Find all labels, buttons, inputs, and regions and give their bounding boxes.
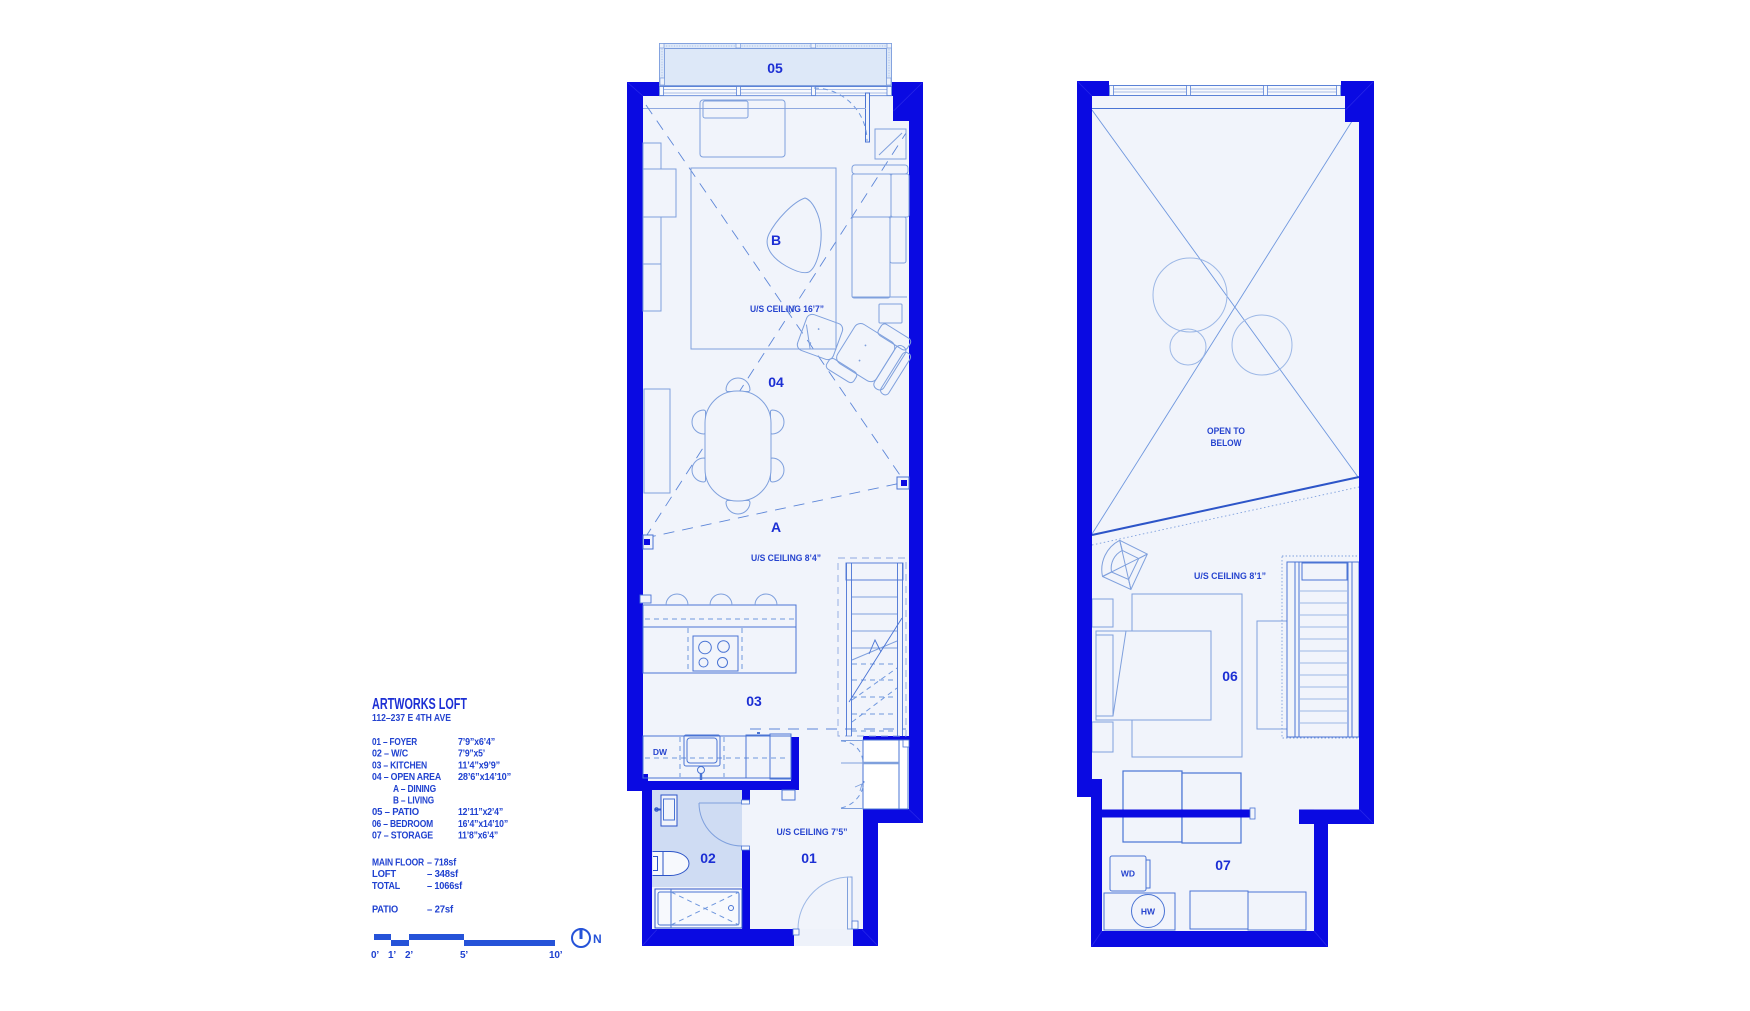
svg-text:– 348sf: – 348sf: [427, 868, 459, 880]
svg-text:03 – KITCHEN: 03 – KITCHEN: [372, 759, 427, 771]
svg-text:06 – BEDROOM: 06 – BEDROOM: [372, 818, 433, 830]
svg-text:07: 07: [1215, 857, 1231, 873]
svg-text:– 27sf: – 27sf: [427, 903, 454, 915]
svg-text:A – DINING: A – DINING: [393, 783, 436, 795]
svg-text:112–237 E 4TH AVE: 112–237 E 4TH AVE: [372, 713, 451, 724]
svg-text:U/S CEILING 16’7”: U/S CEILING 16’7”: [750, 304, 824, 315]
svg-text:03: 03: [746, 693, 762, 709]
svg-text:05: 05: [767, 60, 783, 76]
svg-text:A: A: [771, 519, 781, 535]
svg-text:– 1066sf: – 1066sf: [427, 880, 463, 892]
svg-text:10’: 10’: [549, 950, 563, 961]
svg-text:HW: HW: [1141, 907, 1156, 917]
svg-text:12’11”x2’4”: 12’11”x2’4”: [458, 806, 503, 818]
svg-text:16’4”x14’10”: 16’4”x14’10”: [458, 818, 508, 830]
svg-text:04 – OPEN AREA: 04 – OPEN AREA: [372, 771, 442, 783]
svg-text:01 – FOYER: 01 – FOYER: [372, 736, 417, 748]
svg-text:MAIN FLOOR: MAIN FLOOR: [372, 857, 424, 869]
svg-text:DW: DW: [653, 747, 668, 757]
svg-text:ARTWORKS LOFT: ARTWORKS LOFT: [372, 696, 467, 713]
svg-text:7’9”x5’: 7’9”x5’: [458, 748, 485, 760]
svg-text:U/S CEILING 8’4”: U/S CEILING 8’4”: [751, 553, 821, 564]
svg-text:02: 02: [700, 850, 716, 866]
svg-text:BELOW: BELOW: [1211, 438, 1243, 449]
svg-text:U/S CEILING 8’1”: U/S CEILING 8’1”: [1194, 571, 1266, 582]
svg-text:1’: 1’: [388, 950, 396, 961]
svg-text:N: N: [593, 932, 602, 946]
svg-text:2’: 2’: [405, 950, 413, 961]
svg-text:OPEN TO: OPEN TO: [1207, 426, 1245, 437]
svg-text:WD: WD: [1121, 869, 1135, 879]
svg-text:B: B: [771, 232, 781, 248]
svg-text:B – LIVING: B – LIVING: [393, 795, 434, 807]
svg-text:02 – W/C: 02 – W/C: [372, 748, 409, 760]
svg-text:PATIO: PATIO: [372, 903, 398, 915]
svg-text:TOTAL: TOTAL: [372, 880, 401, 892]
svg-text:U/S CEILING 7’5”: U/S CEILING 7’5”: [777, 827, 848, 838]
svg-text:– 718sf: – 718sf: [427, 857, 457, 869]
svg-text:04: 04: [768, 374, 784, 390]
svg-text:07 – STORAGE: 07 – STORAGE: [372, 830, 433, 842]
svg-text:05 – PATIO: 05 – PATIO: [372, 806, 419, 818]
svg-text:0’: 0’: [371, 950, 379, 961]
svg-text:01: 01: [801, 850, 817, 866]
svg-text:28’6”x14’10”: 28’6”x14’10”: [458, 771, 511, 783]
svg-text:7’9”x6’4”: 7’9”x6’4”: [458, 736, 495, 748]
svg-text:06: 06: [1222, 668, 1238, 684]
svg-text:11’8”x6’4”: 11’8”x6’4”: [458, 830, 498, 842]
svg-text:LOFT: LOFT: [372, 868, 397, 880]
svg-text:11’4”x9’9”: 11’4”x9’9”: [458, 759, 500, 771]
svg-text:5’: 5’: [460, 950, 468, 961]
